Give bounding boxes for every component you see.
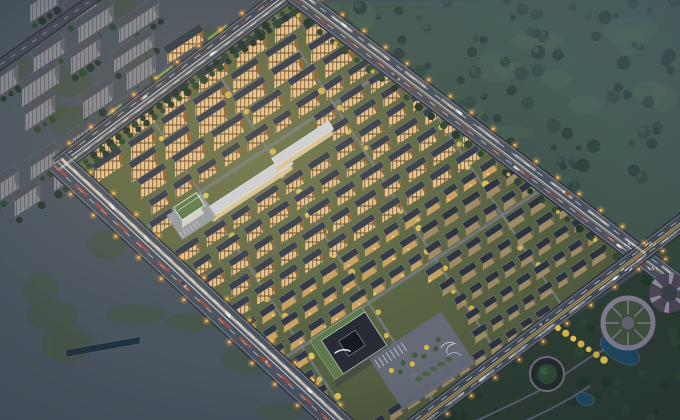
atmosphere-overlay — [0, 0, 680, 420]
aerial-rendering-image — [0, 0, 680, 420]
masterplan-aerial-scene — [0, 0, 680, 420]
